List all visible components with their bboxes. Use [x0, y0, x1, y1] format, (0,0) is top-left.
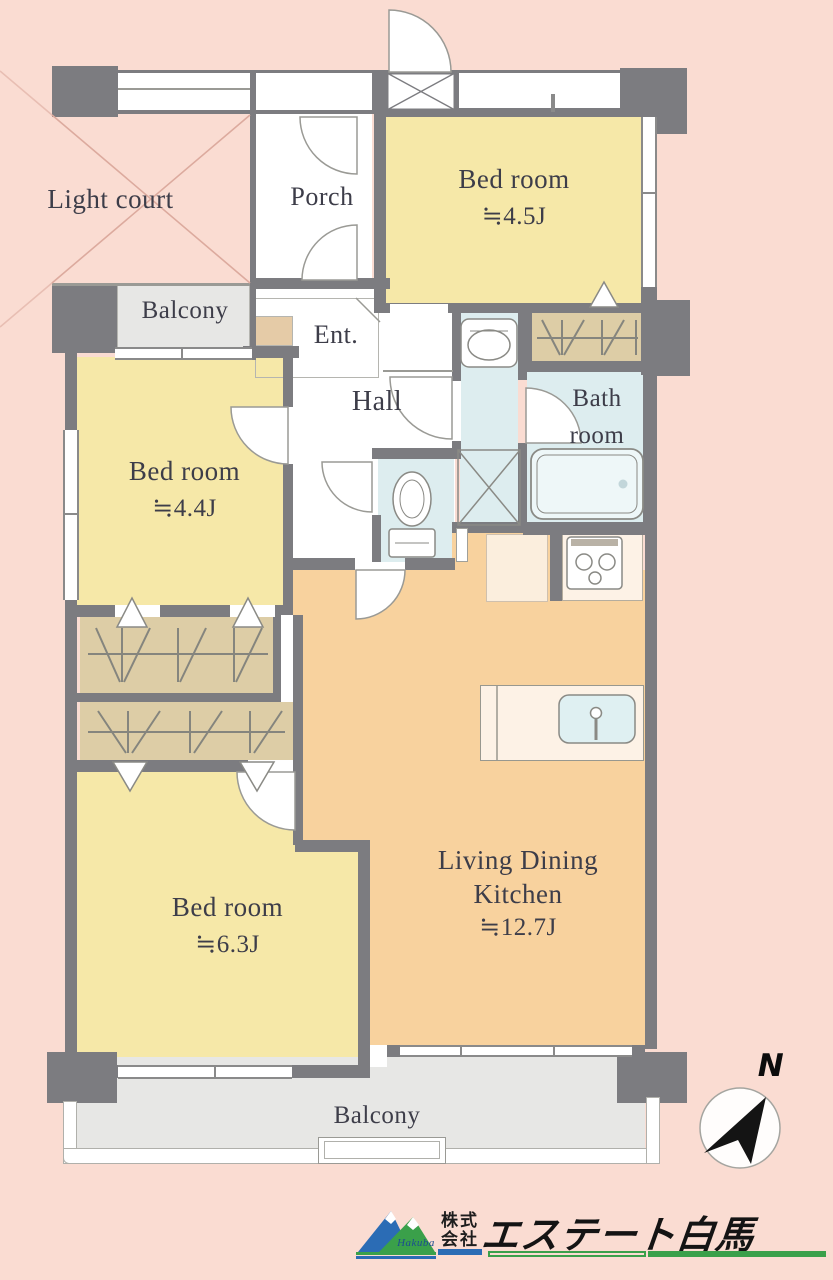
bedroom-bottom-label: Bed room ≒6.3J — [135, 888, 320, 964]
balcony-left-label: Balcony — [124, 297, 246, 325]
bedroom-left-label: Bed room ≒4.4J — [92, 452, 277, 528]
bathroom-label-line1: Bath — [543, 380, 651, 417]
porch-label: Porch — [268, 182, 376, 212]
logo-company-type: 株式 会社 — [436, 1212, 484, 1250]
floor-plan-image: Light court Porch Ent. Hall Bath room Be… — [0, 0, 833, 1280]
bathtub-icon — [531, 449, 643, 519]
logo-company-type-line1: 株式 — [436, 1212, 484, 1231]
washbasin-icon — [461, 319, 517, 367]
balcony-bottom-label: Balcony — [312, 1102, 442, 1130]
ldk-label: Living Dining Kitchen ≒12.7J — [418, 843, 618, 945]
entrance-door-arc — [389, 10, 451, 72]
bedroom-bottom-size: ≒6.3J — [135, 926, 320, 964]
ldk-size: ≒12.7J — [418, 911, 618, 945]
bedroom-bottom-door-arc — [237, 772, 295, 830]
ldk-door-arc — [356, 570, 405, 619]
entrance-step-line — [356, 298, 380, 322]
toilet-door-arc — [322, 462, 372, 512]
door-arcs — [231, 10, 581, 830]
logo-company-type-underline — [438, 1249, 482, 1255]
bedroom-left-size: ≒4.4J — [92, 490, 277, 528]
light-court-label: Light court — [28, 184, 193, 215]
bedroom-top-size: ≒4.5J — [424, 198, 604, 236]
logo-underline-solid — [648, 1251, 826, 1257]
bedroom-left-name: Bed room — [92, 452, 277, 490]
bedroom-top-label: Bed room ≒4.5J — [424, 160, 604, 236]
entrance-label: Ent. — [296, 320, 376, 350]
bathroom-label-line2: room — [543, 417, 651, 454]
logo-underline-light — [488, 1251, 646, 1257]
closet-hanger-icon — [88, 711, 285, 753]
ldk-label-line1: Living Dining — [418, 843, 618, 877]
compass-north-label: N — [748, 1048, 794, 1084]
compass-icon — [700, 1088, 780, 1168]
closet-hanger-icon — [88, 628, 268, 682]
bedroom-top-name: Bed room — [424, 160, 604, 198]
porch-door-arc — [300, 117, 357, 174]
stove-icon — [567, 537, 622, 589]
kitchen-sink-icon — [559, 695, 635, 743]
hall-label: Hall — [322, 386, 432, 418]
logo-mountain-icon — [356, 1211, 436, 1259]
entrance-door-box — [387, 73, 455, 110]
closet-hanger-icon — [537, 320, 638, 355]
bedroom-bottom-name: Bed room — [135, 888, 320, 926]
logo-company-type-line2: 会社 — [436, 1231, 484, 1250]
ldk-label-line2: Kitchen — [418, 877, 618, 911]
bathroom-label: Bath room — [543, 380, 651, 454]
shaft-icon — [458, 450, 520, 525]
porch-door-arc — [302, 225, 357, 280]
toilet-icon — [389, 472, 435, 557]
folding-door-marks — [113, 282, 618, 791]
